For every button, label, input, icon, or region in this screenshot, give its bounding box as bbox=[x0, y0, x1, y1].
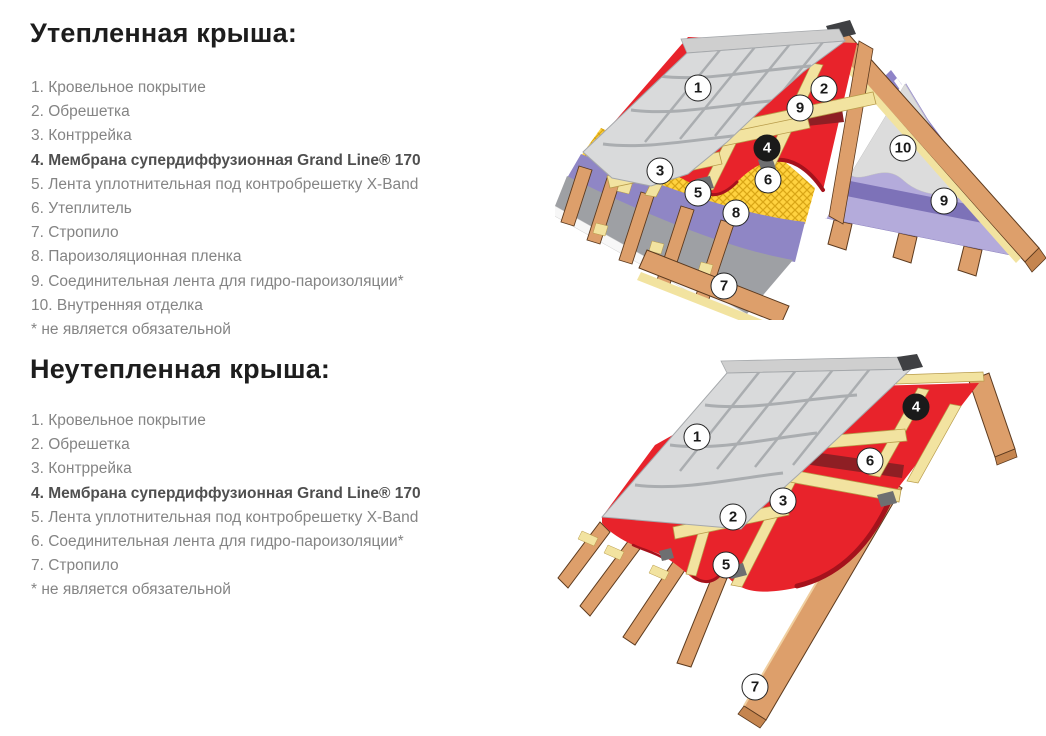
section-heading-insulated: Утепленная крыша: bbox=[30, 18, 297, 49]
callout-2: 2 bbox=[811, 76, 838, 103]
list-item: 3. Контррейка bbox=[31, 124, 421, 148]
list-item: 6. Соединительная лента для гидро-пароиз… bbox=[31, 530, 421, 554]
callout-2: 2 bbox=[720, 504, 747, 531]
callout-6: 6 bbox=[755, 167, 782, 194]
list-item: 2. Обрешетка bbox=[31, 433, 421, 457]
callout-4: 4 bbox=[903, 394, 930, 421]
callout-3: 3 bbox=[770, 488, 797, 515]
list-item: 4. Мембрана супердиффузионная Grand Line… bbox=[31, 482, 421, 506]
list-item: 8. Пароизоляционная пленка bbox=[31, 245, 421, 269]
insulated-roof-diagram: 129436581097 bbox=[555, 10, 1046, 320]
list-item: 3. Контррейка bbox=[31, 457, 421, 481]
list-item: 2. Обрешетка bbox=[31, 100, 421, 124]
callout-7: 7 bbox=[711, 273, 738, 300]
callout-1: 1 bbox=[685, 75, 712, 102]
list-item: 10. Внутренняя отделка bbox=[31, 294, 421, 318]
page-root: Утепленная крыша: 1. Кровельное покрытие… bbox=[0, 0, 1046, 736]
list-item: 4. Мембрана супердиффузионная Grand Line… bbox=[31, 149, 421, 173]
callout-4: 4 bbox=[754, 135, 781, 162]
callout-5: 5 bbox=[713, 552, 740, 579]
non-insulated-roof-diagram: 1463257 bbox=[555, 345, 1046, 736]
list-item: 5. Лента уплотнительная под контробрешет… bbox=[31, 506, 421, 530]
list-item: 1. Кровельное покрытие bbox=[31, 76, 421, 100]
list-item: 1. Кровельное покрытие bbox=[31, 409, 421, 433]
callout-3: 3 bbox=[647, 158, 674, 185]
layer-list-insulated: 1. Кровельное покрытие2. Обрешетка3. Кон… bbox=[31, 76, 421, 342]
callout-1: 1 bbox=[684, 424, 711, 451]
callout-5: 5 bbox=[685, 180, 712, 207]
list-item: 7. Стропило bbox=[31, 221, 421, 245]
footnote: * не является обязательной bbox=[31, 578, 421, 602]
callout-7: 7 bbox=[742, 674, 769, 701]
list-item: 7. Стропило bbox=[31, 554, 421, 578]
list-item: 6. Утеплитель bbox=[31, 197, 421, 221]
list-item: 5. Лента уплотнительная под контробрешет… bbox=[31, 173, 421, 197]
callout-10: 10 bbox=[890, 135, 917, 162]
section-heading-non-insulated: Неутепленная крыша: bbox=[30, 354, 330, 385]
layer-list-non-insulated: 1. Кровельное покрытие2. Обрешетка3. Кон… bbox=[31, 409, 421, 603]
footnote: * не является обязательной bbox=[31, 318, 421, 342]
list-item: 9. Соединительная лента для гидро-пароиз… bbox=[31, 270, 421, 294]
callout-6: 6 bbox=[857, 448, 884, 475]
callout-8: 8 bbox=[723, 200, 750, 227]
callout-9: 9 bbox=[931, 188, 958, 215]
insulated-roof-illustration bbox=[555, 10, 1046, 320]
non-insulated-roof-illustration bbox=[555, 345, 1046, 736]
callout-9: 9 bbox=[787, 95, 814, 122]
